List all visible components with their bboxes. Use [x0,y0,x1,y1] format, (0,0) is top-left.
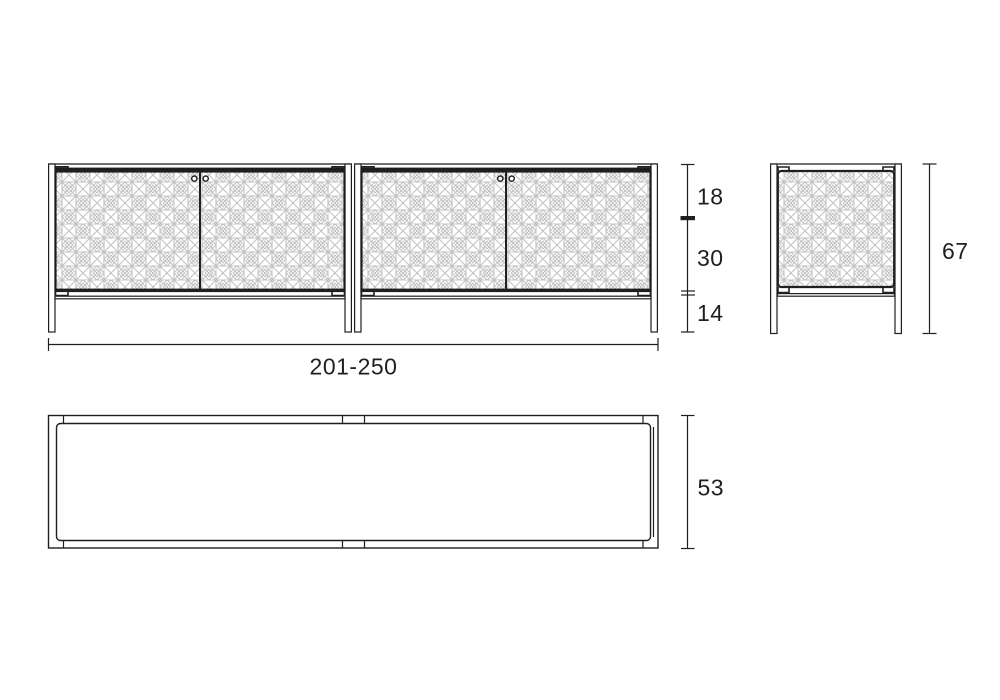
front-leg-section-label: 14 [697,300,724,326]
front-view [49,164,658,332]
side-panel [778,171,894,287]
technical-drawing-canvas: 18 30 14 201-250 67 [0,0,1000,700]
front-height-dimension: 18 30 14 [681,165,724,333]
side-view [771,164,902,334]
top-view [49,416,659,549]
front-module-right [355,164,658,332]
front-width-label: 201-250 [310,354,398,380]
top-view-depth-label: 53 [698,475,725,501]
front-top-section-label: 18 [697,184,724,210]
side-total-height-label: 67 [942,238,969,264]
front-module-left [49,164,352,332]
top-depth-dimension: 53 [681,416,724,549]
front-middle-section-label: 30 [697,245,724,271]
front-width-dimension: 201-250 [49,338,659,380]
side-right-leg [895,164,901,334]
furniture-dimension-drawing: 18 30 14 201-250 67 [0,0,1000,700]
side-left-leg [771,164,777,334]
dimension-bold-tick [681,216,696,220]
side-rail [778,294,895,297]
side-height-dimension: 67 [923,164,969,334]
top-view-surface [57,424,651,541]
